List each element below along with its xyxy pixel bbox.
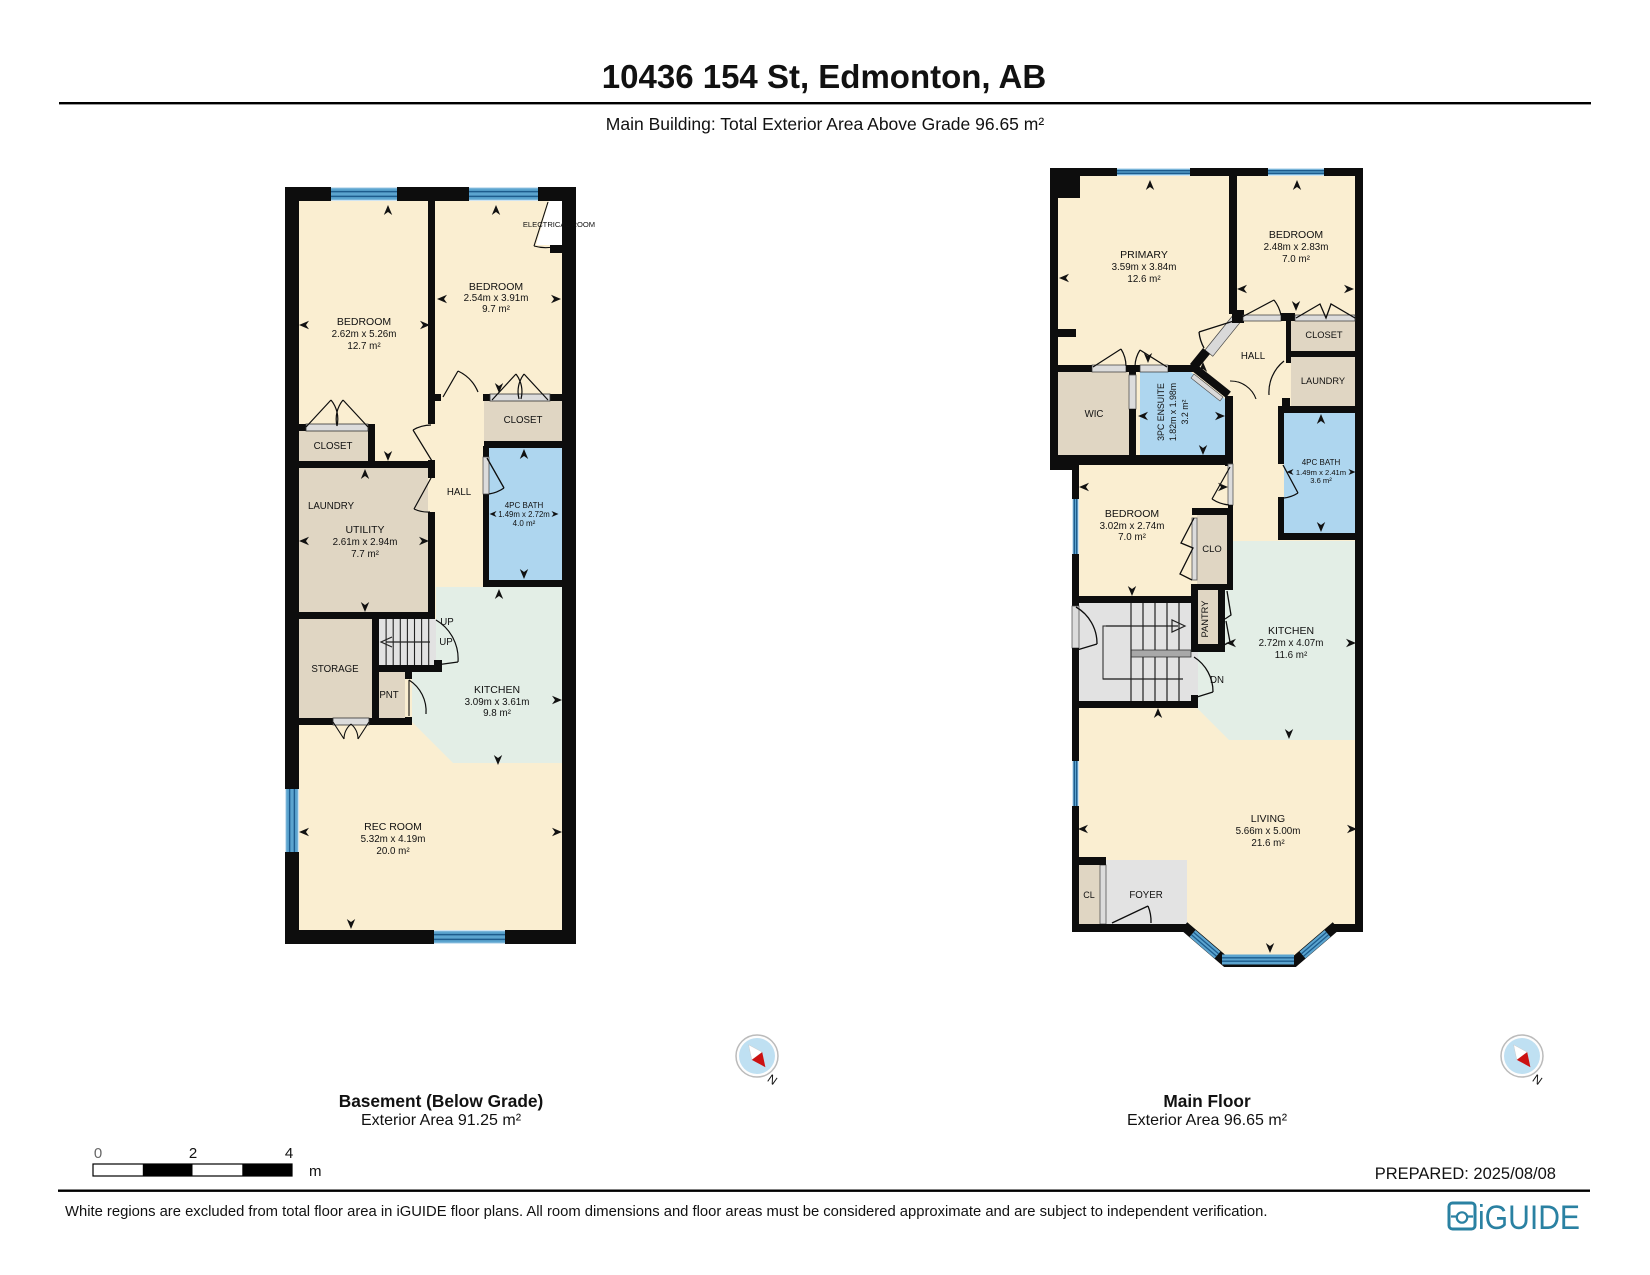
svg-text:KITCHEN: KITCHEN [1268, 625, 1314, 637]
svg-text:HALL: HALL [1241, 351, 1266, 362]
svg-text:12.6 m²: 12.6 m² [1127, 274, 1161, 285]
svg-text:2: 2 [189, 1145, 197, 1162]
svg-text:KITCHEN: KITCHEN [474, 684, 520, 696]
svg-text:LAUNDRY: LAUNDRY [1301, 376, 1345, 386]
svg-text:CL: CL [1083, 890, 1095, 900]
svg-text:7.0 m²: 7.0 m² [1118, 532, 1147, 543]
svg-text:1.49m x 2.72m: 1.49m x 2.72m [498, 510, 550, 519]
svg-text:DN: DN [1210, 675, 1224, 686]
svg-text:iGUIDE: iGUIDE [1478, 1199, 1580, 1237]
svg-text:BEDROOM: BEDROOM [1105, 508, 1159, 520]
svg-text:4.0 m²: 4.0 m² [513, 519, 536, 528]
svg-text:21.6 m²: 21.6 m² [1251, 838, 1285, 849]
svg-text:3.02m x 2.74m: 3.02m x 2.74m [1100, 521, 1165, 532]
svg-text:Exterior Area 91.25 m²: Exterior Area 91.25 m² [361, 1112, 522, 1129]
svg-text:20.0 m²: 20.0 m² [376, 846, 410, 857]
svg-text:CLOSET: CLOSET [504, 415, 543, 426]
svg-text:7.7 m²: 7.7 m² [351, 549, 380, 560]
svg-text:4PC BATH: 4PC BATH [1302, 458, 1341, 467]
svg-text:m: m [309, 1163, 322, 1180]
svg-text:UP: UP [439, 637, 452, 648]
svg-text:LAUNDRY: LAUNDRY [308, 501, 355, 512]
svg-text:BEDROOM: BEDROOM [469, 281, 523, 293]
svg-text:WIC: WIC [1085, 409, 1104, 420]
svg-text:12.7 m²: 12.7 m² [347, 341, 381, 352]
svg-text:Basement (Below Grade): Basement (Below Grade) [339, 1091, 544, 1111]
svg-text:White regions are excluded fro: White regions are excluded from total fl… [65, 1204, 1267, 1220]
svg-text:BEDROOM: BEDROOM [337, 316, 391, 328]
svg-text:3.59m x 3.84m: 3.59m x 3.84m [1112, 262, 1177, 273]
svg-text:9.7 m²: 9.7 m² [482, 304, 511, 315]
svg-text:HALL: HALL [447, 487, 472, 498]
svg-text:PANTRY: PANTRY [1200, 601, 1210, 638]
svg-text:PREPARED: 2025/08/08: PREPARED: 2025/08/08 [1375, 1165, 1556, 1183]
svg-text:STORAGE: STORAGE [311, 664, 359, 675]
svg-text:Main Floor: Main Floor [1163, 1091, 1251, 1111]
svg-text:Main Building: Total Exterior: Main Building: Total Exterior Area Above… [606, 114, 1045, 134]
svg-text:CLOSET: CLOSET [314, 441, 353, 452]
svg-text:CLOSET: CLOSET [1305, 330, 1343, 340]
svg-text:3.6 m²: 3.6 m² [1310, 476, 1332, 485]
svg-text:11.6 m²: 11.6 m² [1275, 650, 1308, 661]
svg-text:UTILITY: UTILITY [345, 524, 384, 536]
svg-text:PRIMARY: PRIMARY [1120, 249, 1168, 261]
svg-text:3.09m x 3.61m: 3.09m x 3.61m [465, 697, 530, 708]
svg-text:LIVING: LIVING [1251, 813, 1285, 825]
svg-text:2.61m x 2.94m: 2.61m x 2.94m [333, 537, 398, 548]
svg-text:1.82m x 1.98m: 1.82m x 1.98m [1168, 383, 1178, 441]
svg-text:9.8 m²: 9.8 m² [483, 708, 512, 719]
svg-text:5.32m x 4.19m: 5.32m x 4.19m [361, 834, 426, 845]
svg-text:10436 154 St, Edmonton, AB: 10436 154 St, Edmonton, AB [602, 58, 1046, 95]
svg-text:2.62m x 5.26m: 2.62m x 5.26m [332, 329, 397, 340]
svg-text:2.48m x 2.83m: 2.48m x 2.83m [1264, 242, 1329, 253]
svg-text:BEDROOM: BEDROOM [1269, 229, 1323, 241]
svg-text:CLO: CLO [1202, 544, 1222, 555]
svg-text:3PC ENSUITE: 3PC ENSUITE [1156, 383, 1166, 441]
svg-text:PNT: PNT [379, 690, 398, 701]
svg-text:2.54m x 3.91m: 2.54m x 3.91m [464, 293, 529, 304]
svg-text:ELECTRICAL ROOM: ELECTRICAL ROOM [523, 220, 595, 229]
svg-text:0: 0 [94, 1145, 102, 1162]
svg-text:UP: UP [440, 617, 453, 628]
svg-text:REC ROOM: REC ROOM [364, 821, 422, 833]
svg-text:4PC BATH: 4PC BATH [505, 501, 544, 510]
svg-text:7.0 m²: 7.0 m² [1282, 254, 1311, 265]
svg-text:4: 4 [285, 1145, 293, 1162]
svg-text:Exterior Area 96.65 m²: Exterior Area 96.65 m² [1127, 1112, 1288, 1129]
svg-text:FOYER: FOYER [1129, 890, 1162, 901]
svg-text:3.2 m²: 3.2 m² [1180, 399, 1190, 424]
svg-text:5.66m x 5.00m: 5.66m x 5.00m [1236, 826, 1301, 837]
svg-text:2.72m x 4.07m: 2.72m x 4.07m [1259, 638, 1324, 649]
